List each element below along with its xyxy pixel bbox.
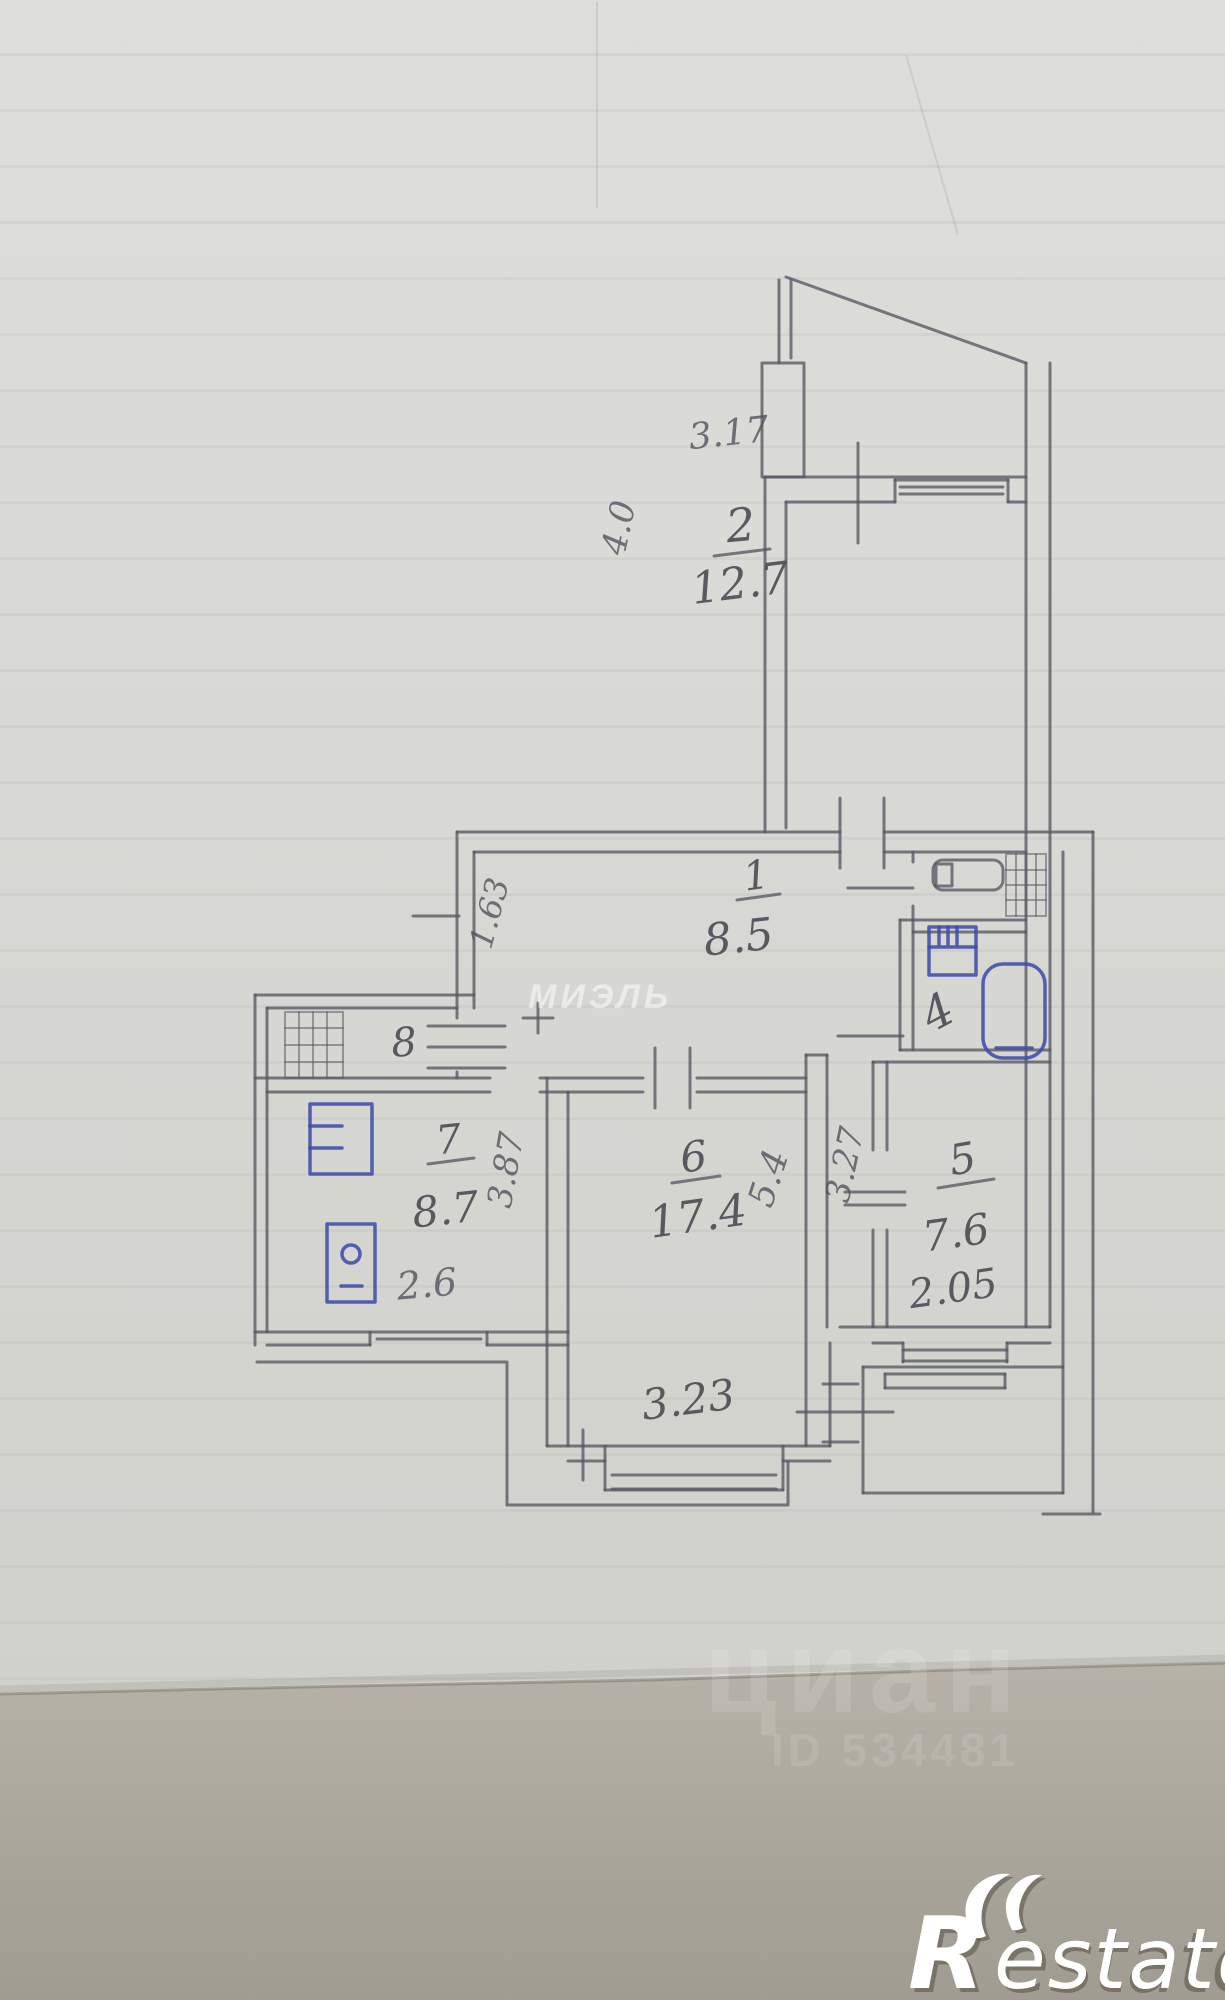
fridge-icon (327, 1224, 375, 1302)
dim-room2-depth: 4.0 (594, 497, 645, 559)
label-bathroom-number: 4 (911, 981, 963, 1043)
logo-text: estate (994, 1910, 1225, 2000)
label-hall-number: 1 (740, 852, 772, 901)
dim-kitchen-width: 2.6 (394, 1259, 459, 1308)
watermark-portal: циан (704, 1606, 1026, 1738)
dim-room6-width: 3.23 (639, 1370, 738, 1430)
label-room8-number: 8 (390, 1019, 419, 1067)
stove-icon (310, 1104, 372, 1174)
dim-room6-depth: 5.4 (741, 1145, 798, 1212)
label-kitchen-number: 7 (434, 1116, 465, 1164)
label-room6-number: 6 (678, 1131, 710, 1183)
label-hall-area: 8.5 (701, 909, 776, 967)
logo-r: R (908, 1895, 985, 2000)
bathtub-icon (983, 964, 1045, 1058)
label-room2-number: 2 (723, 497, 758, 553)
label-room5-area: 7.6 (919, 1204, 992, 1262)
label-kitchen-area: 8.7 (410, 1182, 482, 1238)
label-room5-number: 5 (945, 1132, 980, 1185)
watermark-agency: МИЭЛЬ (528, 978, 672, 1016)
watermark-portal-id: ID 534481 (771, 1724, 1019, 1776)
dim-room5-width: 2.05 (905, 1260, 1001, 1318)
walls (255, 277, 1100, 1514)
dim-hall-niche: 1.63 (462, 874, 517, 953)
diagonal-bay-wall (786, 277, 1026, 363)
dim-kitchen-depth: 3.87 (480, 1129, 533, 1211)
paper-creases (597, 2, 958, 235)
watermarks: МИЭЛЬ циан ID 534481 (528, 978, 1026, 1776)
label-room6-area: 17.4 (646, 1185, 750, 1249)
washbasin (933, 860, 1003, 890)
label-room2-area: 12.7 (689, 552, 792, 615)
floor-plan-canvas: 3.17 4.0 2 12.7 1 8.5 1.63 8 7 8.7 3.87 … (0, 0, 1225, 2000)
washing-machine-icon (929, 927, 976, 975)
dim-room2-width: 3.17 (687, 409, 771, 458)
wall-column (762, 363, 804, 477)
scanned-floor-plan-photo: 3.17 4.0 2 12.7 1 8.5 1.63 8 7 8.7 3.87 … (0, 0, 1225, 2000)
